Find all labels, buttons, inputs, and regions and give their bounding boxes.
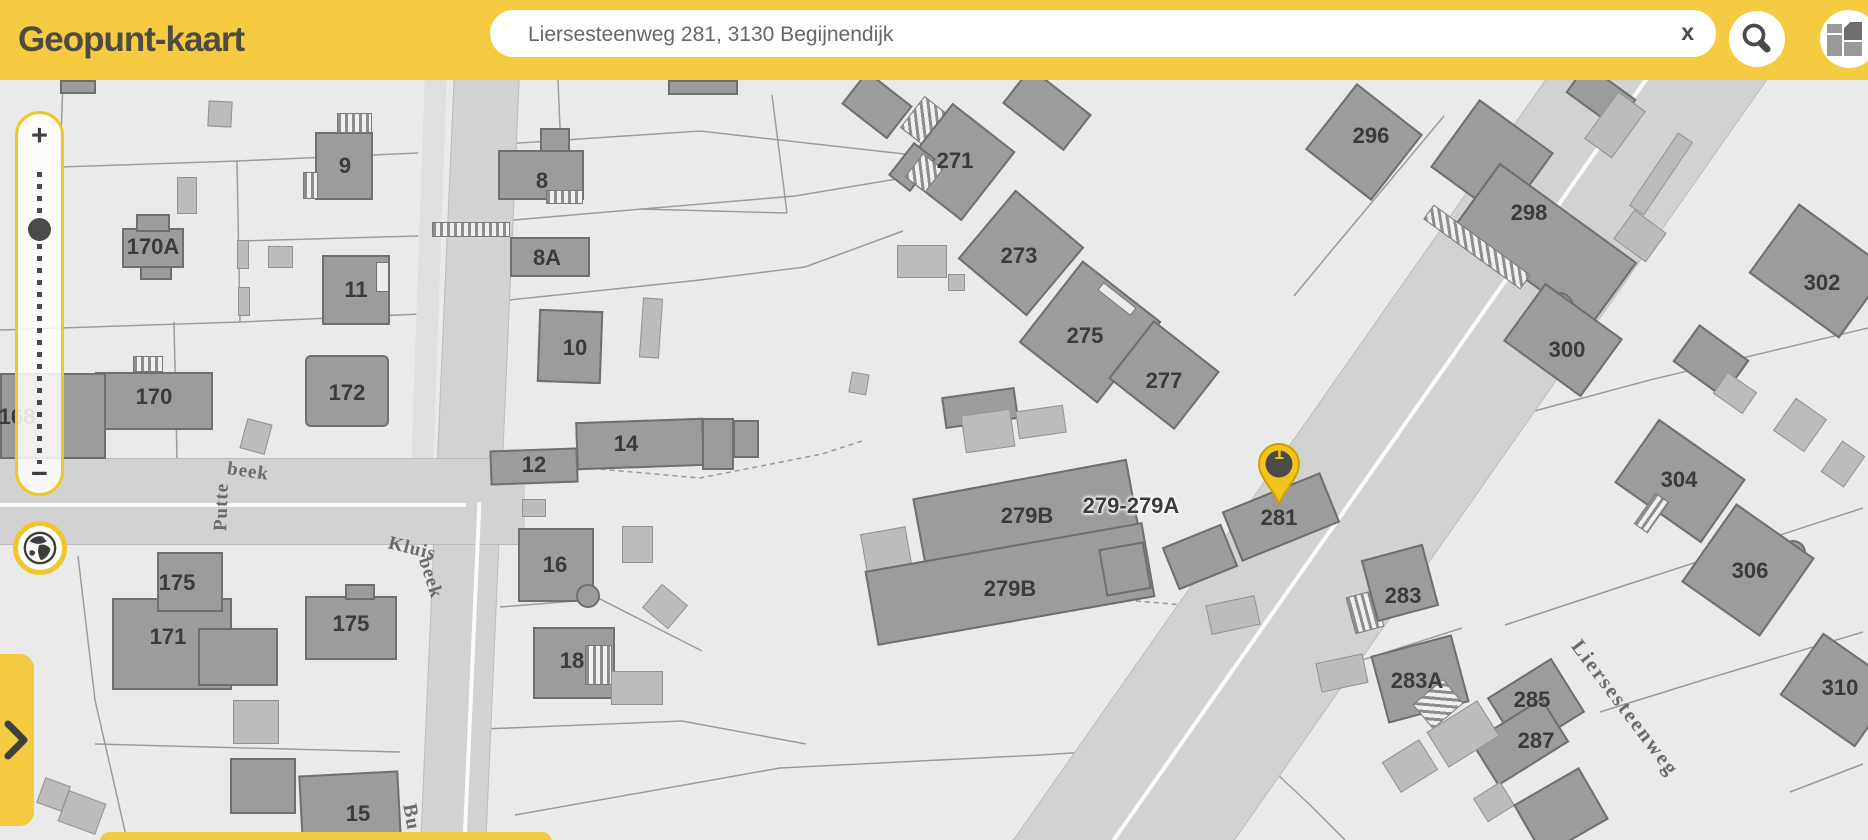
building-shed [237, 240, 249, 269]
house-number-label: 10 [563, 335, 587, 361]
map-panels-icon [1827, 35, 1842, 56]
house-number-label: 171 [150, 624, 187, 650]
clear-search-button[interactable]: x [1681, 19, 1694, 46]
street-label-puttebeek: Putte [210, 482, 234, 531]
house-number-label: 275 [1067, 323, 1104, 349]
house-number-label: 9 [339, 153, 351, 179]
zoom-out-button[interactable]: − [18, 458, 61, 491]
building-hatched [303, 172, 318, 199]
house-number-label: 302 [1804, 270, 1841, 296]
building-170A [136, 214, 170, 232]
building-14 [575, 418, 705, 470]
map-panels-button[interactable] [1820, 10, 1868, 68]
house-number-label: 310 [1822, 675, 1859, 701]
zoom-slider-track[interactable] [37, 172, 42, 464]
chevron-right-icon [0, 718, 30, 762]
building-175 [345, 584, 375, 600]
building-shed [177, 177, 197, 214]
building-hatched [133, 356, 163, 372]
building-shed [961, 409, 1016, 454]
building-shed [622, 526, 653, 563]
house-number-label: 287 [1518, 728, 1555, 754]
globe-overview-button[interactable] [13, 521, 67, 575]
house-number-label: 11 [344, 277, 367, 303]
house-number-label: 279-279A [1083, 493, 1180, 519]
building-8 [540, 128, 570, 152]
house-number-label: 15 [346, 801, 370, 827]
house-number-label: 8A [533, 245, 561, 271]
building-shed [611, 671, 663, 705]
map-panels-icon [1844, 42, 1862, 56]
building [668, 80, 738, 95]
building [702, 418, 734, 470]
building [1098, 541, 1152, 596]
house-number-label: 170A [127, 234, 180, 260]
building [60, 80, 96, 94]
house-number-label: 14 [614, 431, 638, 457]
building-shed [522, 499, 546, 517]
bottom-info-bar[interactable] [100, 832, 552, 840]
house-number-label: 296 [1353, 123, 1390, 149]
building-shed [233, 700, 279, 744]
house-number-label: 300 [1549, 337, 1586, 363]
building-170A [140, 266, 172, 280]
house-number-label: 281 [1261, 505, 1298, 531]
building [733, 420, 759, 458]
building-shed [848, 372, 869, 396]
search-bar[interactable]: x [490, 10, 1716, 57]
map-panels-icon [1844, 22, 1862, 40]
house-number-label: 306 [1732, 558, 1769, 584]
house-number-label: 170 [136, 384, 173, 410]
building [230, 758, 296, 814]
house-number-label: 279B [984, 576, 1037, 602]
side-panel-expand-tab[interactable] [0, 654, 34, 826]
marker-number: 1 [1251, 443, 1307, 464]
house-number-label: 8 [536, 168, 548, 194]
building-171 [198, 628, 278, 686]
search-result-marker[interactable]: 1 [1251, 436, 1307, 508]
zoom-slider-knob[interactable] [28, 218, 51, 241]
house-number-label: 172 [329, 380, 366, 406]
building-shed [268, 246, 293, 268]
building-hatched [337, 113, 372, 133]
house-number-label: 12 [522, 452, 546, 478]
magnifier-icon [1740, 22, 1774, 56]
house-number-label: 175 [159, 570, 196, 596]
zoom-slider[interactable]: + − [15, 111, 64, 496]
house-number-label: 285 [1514, 687, 1551, 713]
house-number-label: 298 [1511, 200, 1548, 226]
house-number-label: 277 [1146, 368, 1183, 394]
globe-icon [21, 529, 59, 567]
house-number-label: 273 [1001, 243, 1038, 269]
building-hatched [585, 645, 612, 685]
house-number-label: 271 [937, 148, 974, 174]
building-shed [639, 297, 663, 358]
building-shed [238, 287, 250, 316]
search-input[interactable] [526, 10, 1650, 59]
house-number-label: 175 [333, 611, 370, 637]
house-number-label: 304 [1661, 467, 1698, 493]
building-shed [948, 274, 965, 291]
house-number-label: 283 [1385, 583, 1422, 609]
building-shed [207, 100, 232, 127]
app-header: Geopunt-kaart x [0, 0, 1868, 80]
app-title: Geopunt-kaart [18, 0, 244, 80]
building-hatched [546, 190, 583, 204]
building-hatched [432, 222, 510, 237]
map-viewport[interactable]: 9 8 8A 10 11 12 14 16 18 15 170A 170 172… [0, 0, 1868, 840]
house-number-label: 283A [1391, 668, 1444, 694]
zoom-in-button[interactable]: + [18, 120, 61, 153]
house-number-label: 279B [1001, 503, 1054, 529]
street-label-bu: Bu [397, 802, 424, 832]
search-button[interactable] [1729, 11, 1785, 67]
building-shed [897, 245, 947, 278]
map-panels-icon [1827, 24, 1842, 33]
building-16 [576, 584, 600, 608]
house-number-label: 16 [543, 552, 567, 578]
building-notch [376, 262, 389, 292]
house-number-label: 18 [560, 648, 584, 674]
